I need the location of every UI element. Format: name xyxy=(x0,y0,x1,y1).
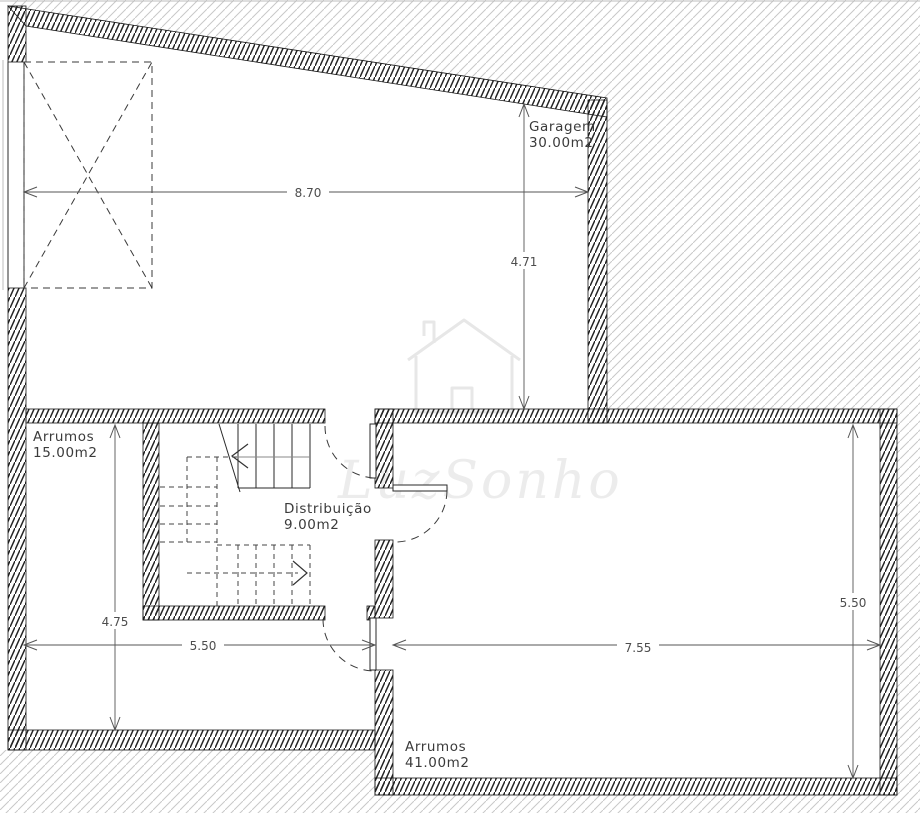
wall-middle-bottom-seg xyxy=(375,670,393,795)
dimension-arrumos15-width: 5.50 xyxy=(24,636,375,653)
stair-up-arrowhead xyxy=(232,444,248,468)
door-leaf-hall-storage41 xyxy=(393,485,447,491)
door-leaf-garage-hall xyxy=(370,424,376,478)
dim-text-garagem-depth: 4.71 xyxy=(511,255,538,269)
dimension-arrumos15-height: 4.75 xyxy=(95,425,135,730)
dim-text-arrumos15-height: 4.75 xyxy=(102,615,129,629)
floor-plan-canvas: LuzSonho xyxy=(0,0,920,813)
exterior-ground-hatch xyxy=(0,0,920,813)
dim-text-arrumos15-width: 5.50 xyxy=(190,639,217,653)
wall-top-left-corner xyxy=(8,6,26,62)
room-label-distribuicao-name: Distribuição xyxy=(284,501,372,517)
wall-interior-top-right xyxy=(375,409,897,423)
wall-middle-mid-seg xyxy=(375,540,393,618)
room-label-arrumos15-area: 15.00m2 xyxy=(33,445,98,461)
house-outline-icon xyxy=(408,320,520,412)
dimension-arrumos41-width: 7.55 xyxy=(393,638,880,655)
dimension-garagem-width: 8.70 xyxy=(24,183,588,200)
wall-bottom-right-room xyxy=(375,778,897,795)
floor-plan-svg: LuzSonho xyxy=(0,0,920,813)
wall-stair-bottom xyxy=(143,606,325,620)
room-labels: Garagem 30.00m2 Arrumos 15.00m2 Distribu… xyxy=(33,119,596,771)
dim-text-arrumos41-width: 7.55 xyxy=(625,641,652,655)
wall-bottom-left-room xyxy=(8,730,375,750)
room-label-garagem-name: Garagem xyxy=(529,119,596,135)
room-label-garagem-area: 30.00m2 xyxy=(529,135,594,151)
wall-interior-top-left xyxy=(26,409,325,423)
stair-break-line xyxy=(219,424,240,492)
room-label-arrumos15-name: Arrumos xyxy=(33,429,94,445)
room-label-arrumos41-name: Arrumos xyxy=(405,739,466,755)
wall-stair-left xyxy=(143,423,159,620)
wall-right-outer xyxy=(880,409,897,795)
exterior-hatch-top xyxy=(8,0,920,409)
wall-left-lower xyxy=(8,288,26,750)
dim-text-garagem-width: 8.70 xyxy=(295,186,322,200)
garage-door-marker xyxy=(8,62,152,288)
room-label-distribuicao-area: 9.00m2 xyxy=(284,517,339,533)
dimension-arrumos41-height: 5.50 xyxy=(833,425,873,778)
room-label-arrumos41-area: 41.00m2 xyxy=(405,755,470,771)
dim-text-arrumos41-height: 5.50 xyxy=(840,596,867,610)
